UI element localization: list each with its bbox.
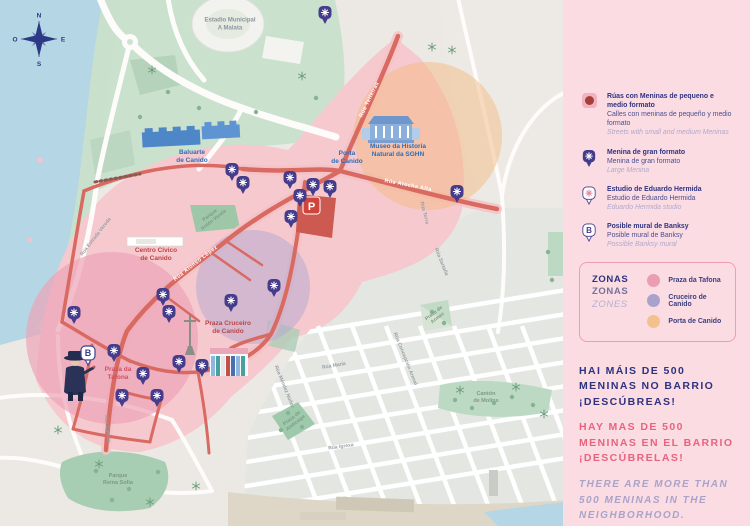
tree-dot-icon — [442, 321, 446, 325]
legend-label-gl: Posible mural de Banksy — [607, 222, 689, 231]
tree-dot-icon — [314, 96, 318, 100]
legend-label-en: Eduardo Hermida studio — [607, 203, 702, 212]
compass-east-label: E — [61, 37, 66, 44]
tree-dot-icon — [110, 498, 114, 502]
legend-label-es: Calles con meninas de pequeño y medio fo… — [607, 110, 736, 128]
zone-color-swatch — [647, 294, 660, 307]
tree-dot-icon — [430, 310, 434, 314]
legend-label-gl: Rúas con Meninas de pequeno e medio form… — [607, 92, 736, 110]
promo-message-es: HAY MAS DE 500 MENINAS EN EL BARRIO ¡DES… — [579, 420, 736, 467]
tree-dot-icon — [453, 398, 457, 402]
tree-dot-icon — [166, 90, 170, 94]
legend-item-banksy: B Posible mural de Banksy Posible mural … — [579, 222, 736, 249]
compass-west-label: O — [12, 37, 17, 44]
tree-dot-icon — [300, 425, 304, 429]
parking-letter: P — [308, 201, 315, 213]
legend-label-es: Posible mural de Banksy — [607, 231, 689, 240]
legend-item-small-meninas: Rúas con Meninas de pequeno e medio form… — [579, 92, 736, 138]
legend-label-es: Menina de gran formato — [607, 157, 685, 166]
zone-label: Cruceiro de Canido — [668, 294, 729, 308]
zone-cruceiro-de-canido — [196, 230, 310, 344]
tree-dot-icon — [492, 401, 496, 405]
tree-dot-icon — [550, 278, 554, 282]
tree-dot-icon — [254, 110, 258, 114]
map-svg: P B — [0, 0, 563, 526]
zones-title-gl: ZONAS — [592, 274, 638, 287]
colorful-houses-icon — [210, 348, 248, 376]
legend-label-es: Estudio de Eduardo Hermida — [607, 194, 702, 203]
tree-dot-icon — [510, 395, 514, 399]
tree-dot-icon — [94, 469, 98, 473]
promo-message-gl: HAI MÁIS DE 500 MENINAS NO BARRIO ¡DESCÚ… — [579, 364, 736, 411]
legend-label-gl: Menina de gran formato — [607, 148, 685, 157]
banksy-pin-icon: B — [579, 222, 599, 249]
map-canvas: P B — [0, 0, 563, 526]
tree-dot-icon — [546, 250, 550, 254]
zone-row-cruceiro: Cruceiro de Canido — [647, 294, 729, 308]
tree-dot-icon — [127, 487, 131, 491]
small-meninas-streets-icon — [579, 92, 599, 138]
legend-label-gl: Estudio de Eduardo Hermida — [607, 185, 702, 194]
tree-dot-icon — [531, 403, 535, 407]
meninas-canido-map-poster: P B — [0, 0, 750, 526]
tree-dot-icon — [470, 406, 474, 410]
legend-label-en: Streets with small and medium Meninas — [607, 128, 736, 137]
zone-row-tafona: Praza da Tafona — [647, 274, 729, 287]
zone-label: Praza da Tafona — [668, 277, 720, 284]
tree-dot-icon — [156, 470, 160, 474]
centro-civico-building — [127, 237, 183, 246]
legend-label-en: Possible Banksy mural — [607, 240, 689, 249]
compass-south-label: S — [37, 61, 42, 68]
compass-north-label: N — [37, 13, 42, 20]
svg-text:B: B — [586, 226, 592, 235]
promo-message-en: THERE ARE MORE THAN 500 MENINAS IN THE N… — [579, 477, 736, 526]
tree-dot-icon — [197, 106, 201, 110]
zone-row-porta: Porta de Canido — [647, 315, 729, 328]
zones-title-en: ZONES — [592, 299, 638, 312]
tree-dot-icon — [286, 411, 290, 415]
tree-dot-icon — [138, 115, 142, 119]
promo-message: HAI MÁIS DE 500 MENINAS NO BARRIO ¡DESCÚ… — [579, 364, 736, 526]
zones-box: ZONAS ZONAS ZONES Praza da Tafona Crucei… — [579, 262, 736, 342]
banksy-letter: B — [85, 348, 92, 358]
zone-color-swatch — [647, 315, 660, 328]
zones-title-es: ZONAS — [592, 286, 638, 299]
large-menina-pin-icon — [579, 148, 599, 175]
legend-label-en: Large Menina — [607, 166, 685, 175]
tree-dot-icon — [279, 428, 283, 432]
hermida-studio-pin-icon — [579, 185, 599, 212]
legend-item-large-menina: Menina de gran formato Menina de gran fo… — [579, 148, 736, 175]
legend-panel: Rúas con Meninas de pequeno e medio form… — [563, 0, 750, 526]
zone-color-swatch — [647, 274, 660, 287]
legend-item-hermida-studio: Estudio de Eduardo Hermida Estudio de Ed… — [579, 185, 736, 212]
zone-label: Porta de Canido — [668, 318, 721, 325]
